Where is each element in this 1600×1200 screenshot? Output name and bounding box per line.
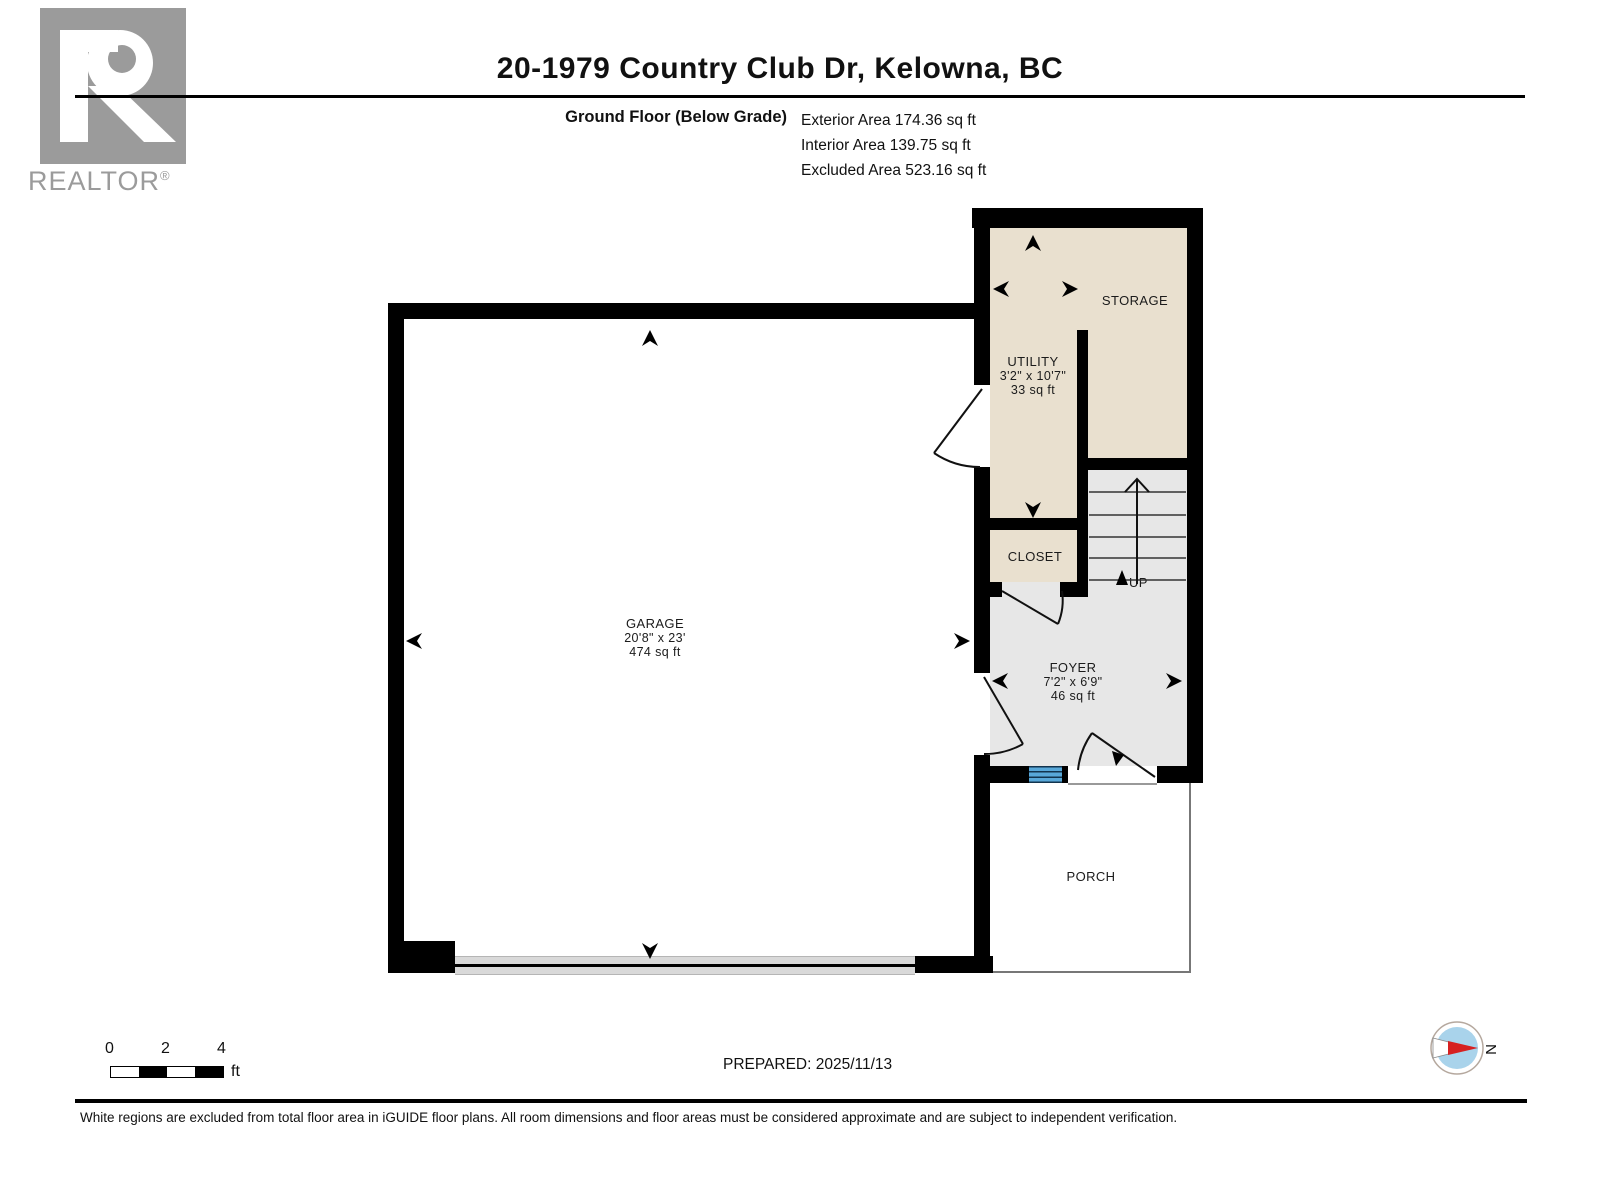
utility-label: UTILITY 3'2" x 10'7" 33 sq ft bbox=[973, 355, 1093, 397]
storage-label: STORAGE bbox=[1085, 294, 1185, 308]
footer-divider bbox=[75, 1099, 1527, 1103]
area-stats: Exterior Area 174.36 sq ft Interior Area… bbox=[801, 108, 986, 183]
realtor-wordmark: REALTOR® bbox=[28, 166, 171, 197]
exterior-area: Exterior Area 174.36 sq ft bbox=[801, 108, 986, 133]
disclaimer-text: White regions are excluded from total fl… bbox=[80, 1110, 1380, 1125]
wall-left-mid bbox=[974, 467, 990, 673]
storage-room-fill bbox=[1088, 228, 1187, 458]
wall-storage-stairs bbox=[1088, 458, 1187, 470]
front-door-threshold bbox=[1068, 783, 1157, 785]
wall-foyer-bottom-left bbox=[974, 766, 1029, 783]
garage-label: GARAGE 20'8" x 23' 474 sq ft bbox=[555, 617, 755, 659]
wall-garage-corner-left bbox=[388, 941, 455, 973]
closet-label: CLOSET bbox=[985, 550, 1085, 564]
wall-closet-top bbox=[990, 518, 1077, 530]
garage-dim-arrow-right bbox=[954, 633, 970, 649]
header-divider bbox=[75, 95, 1525, 98]
scale-tick-2: 2 bbox=[161, 1040, 170, 1058]
foyer-area: 46 sq ft bbox=[1013, 689, 1133, 703]
stairs-up-label: UP bbox=[1129, 576, 1159, 590]
garage-door bbox=[455, 956, 915, 975]
garage-dim-arrow-up bbox=[642, 330, 658, 346]
wall-right bbox=[1187, 228, 1203, 783]
entry-steps bbox=[1029, 766, 1062, 783]
wall-garage-corner-right bbox=[915, 956, 993, 973]
garage-dims: 20'8" x 23' bbox=[555, 631, 755, 645]
wall-foyer-bottom-right bbox=[1157, 766, 1203, 783]
utility-name: UTILITY bbox=[973, 355, 1093, 369]
brand-label: REALTOR bbox=[28, 166, 160, 196]
compass-icon: N bbox=[1431, 1022, 1499, 1074]
wall-steps-edge bbox=[1062, 766, 1068, 783]
foyer-name: FOYER bbox=[1013, 661, 1133, 675]
wall-left-lower bbox=[974, 755, 990, 958]
scale-unit: ft bbox=[231, 1063, 240, 1081]
wall-top bbox=[972, 208, 1203, 228]
garage-area: 474 sq ft bbox=[555, 645, 755, 659]
registered-mark: ® bbox=[160, 168, 171, 183]
page-title: 20-1979 Country Club Dr, Kelowna, BC bbox=[0, 52, 1560, 86]
utility-door-swing bbox=[934, 389, 982, 467]
garage-door-line bbox=[445, 964, 925, 967]
wall-garage-left bbox=[388, 303, 404, 941]
scale-tick-4: 4 bbox=[217, 1040, 226, 1058]
floor-plan-page: REALTOR® 20-1979 Country Club Dr, Kelown… bbox=[0, 0, 1600, 1200]
closet-door-opening bbox=[1000, 582, 1060, 597]
utility-area: 33 sq ft bbox=[973, 383, 1093, 397]
foyer-dims: 7'2" x 6'9" bbox=[1013, 675, 1133, 689]
excluded-area: Excluded Area 523.16 sq ft bbox=[801, 158, 986, 183]
utility-dims: 3'2" x 10'7" bbox=[973, 369, 1093, 383]
wall-garage-top bbox=[388, 303, 974, 319]
compass-north-label: N bbox=[1482, 1044, 1499, 1055]
garage-name: GARAGE bbox=[555, 617, 755, 631]
wall-closet-bottom-left bbox=[990, 582, 1002, 597]
wall-closet-bottom-right bbox=[1060, 582, 1088, 597]
plan-symbols-overlay: N bbox=[0, 0, 1600, 1200]
scale-tick-0: 0 bbox=[105, 1040, 114, 1058]
interior-area: Interior Area 139.75 sq ft bbox=[801, 133, 986, 158]
foyer-label: FOYER 7'2" x 6'9" 46 sq ft bbox=[1013, 661, 1133, 703]
floor-name: Ground Floor (Below Grade) bbox=[420, 108, 787, 127]
realtor-logo bbox=[40, 8, 186, 164]
scale-bar bbox=[110, 1066, 224, 1078]
prepared-date: PREPARED: 2025/11/13 bbox=[723, 1056, 892, 1074]
garage-dim-arrow-left bbox=[406, 633, 422, 649]
porch-label: PORCH bbox=[1031, 870, 1151, 884]
